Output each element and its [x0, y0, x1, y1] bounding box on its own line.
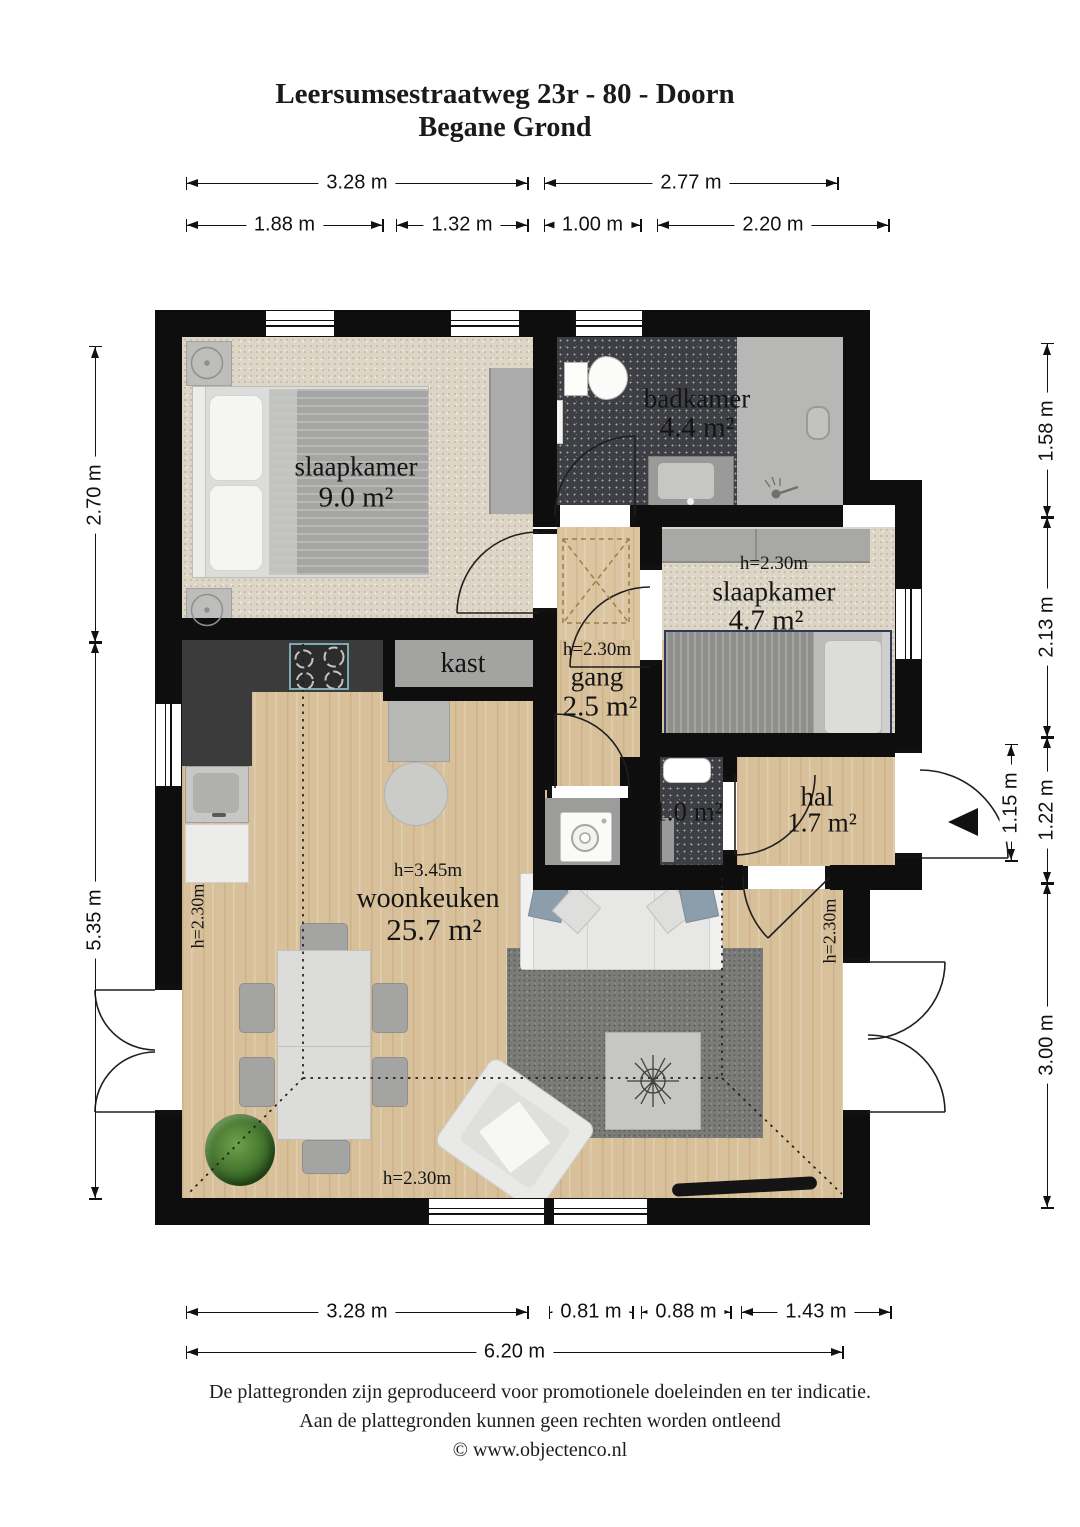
- wall-slaapkamer9-bottom: [182, 618, 533, 640]
- dim-top1-right: 2.77 m: [545, 183, 837, 184]
- label-slaapkamer9-name: slaapkamer: [295, 452, 418, 483]
- label-badkamer-area: 4.4 m²: [660, 412, 735, 445]
- label-kast: kast: [440, 648, 485, 680]
- dining-table: [277, 950, 371, 1140]
- window-left-kitchen: [155, 703, 182, 787]
- dim-right-inner: 1.15 m: [1011, 745, 1012, 860]
- label-woonkeuken-area: 25.7 m²: [386, 912, 481, 948]
- kitchen-sink-basin: [193, 773, 239, 813]
- dim-bottom1-b: 0.81 m: [550, 1312, 632, 1313]
- label-gang-height: h=2.30m: [563, 639, 631, 661]
- label-gang-area: 2.5 m²: [563, 691, 638, 724]
- dim-top2-b: 1.32 m: [397, 225, 527, 226]
- door-badkamer-opening: [555, 505, 635, 527]
- label-toilet-area: 1.0 m²: [653, 797, 723, 828]
- door-slaapkamer47-opening: [640, 565, 662, 665]
- kitchen-counter-top: [182, 640, 385, 692]
- dim-top1-left: 3.28 m: [187, 183, 527, 184]
- nightstand-top: [186, 341, 232, 386]
- toilet-room-sink: [663, 758, 711, 783]
- dim-right-b: 2.13 m: [1047, 517, 1048, 737]
- window-bottom-2: [553, 1198, 648, 1225]
- dim-bottom1-c: 0.88 m: [642, 1312, 730, 1313]
- washing-machine: [560, 812, 612, 862]
- dim-bottom1-d: 1.43 m: [742, 1312, 890, 1313]
- floorplan-page: Leersumsestraatweg 23r - 80 - Doorn Bega…: [0, 0, 1080, 1527]
- label-slaapkamer47-area: 4.7 m²: [729, 605, 804, 638]
- shower-drain: [806, 406, 830, 440]
- label-slaapkamer9-area: 9.0 m²: [319, 482, 394, 515]
- wall-right-badkamer: [843, 310, 870, 505]
- kitchen-cabinet: [388, 696, 450, 762]
- single-bed: [664, 630, 892, 742]
- washbasin-sink: [658, 463, 714, 499]
- dim-top2-c: 1.00 m: [545, 225, 640, 226]
- wardrobe-slaapkamer-9: [489, 368, 533, 514]
- dim-right-c: 1.22 m: [1047, 737, 1048, 883]
- toilet-cistern: [564, 362, 588, 396]
- bed-headboard: [193, 387, 206, 577]
- dim-right-d: 3.00 m: [1047, 883, 1048, 1207]
- dim-bottom1-a: 3.28 m: [187, 1312, 527, 1313]
- label-hal-area: 1.7 m²: [787, 808, 857, 839]
- single-bed-pillow: [824, 640, 882, 734]
- kitchen-sink: [185, 766, 249, 823]
- kitchen-tap: [212, 813, 226, 817]
- dining-chair: [372, 983, 408, 1033]
- dishwasher: [185, 824, 249, 883]
- washbasin-tap: [687, 498, 694, 505]
- window-right-slaapkamer47: [895, 588, 922, 660]
- copyright: © www.objectenco.nl: [0, 1436, 1080, 1465]
- dining-chair: [302, 1140, 350, 1174]
- washbasin: [648, 456, 734, 506]
- wall-hal-bottom-right: [830, 865, 922, 890]
- window-bottom-1: [428, 1198, 545, 1225]
- table-seam: [278, 1046, 370, 1047]
- dim-left-upper: 2.70 m: [95, 347, 96, 642]
- door-slaapkamer9-opening: [533, 529, 557, 613]
- single-bed-blanket: [666, 632, 814, 740]
- dining-chair: [372, 1057, 408, 1107]
- wall-slaapkamer47-bottom: [640, 733, 922, 757]
- dim-right-a: 1.58 m: [1047, 344, 1048, 517]
- label-slaapkamer47-height: h=2.30m: [740, 553, 808, 575]
- wall-hal-bottom-left: [533, 865, 743, 890]
- kitchen-counter-left: [182, 690, 252, 766]
- dim-top2-d: 2.20 m: [658, 225, 888, 226]
- page-title: Leersumsestraatweg 23r - 80 - Doorn: [0, 78, 1010, 111]
- dim-left-lower: 5.35 m: [95, 642, 96, 1198]
- window-top-3: [575, 310, 643, 337]
- label-badkamer-name: badkamer: [644, 384, 750, 415]
- french-door-right-opening: [843, 958, 870, 1115]
- entrance-arrow-icon: [948, 808, 978, 836]
- plant: [205, 1114, 275, 1186]
- coffee-table: [605, 1032, 701, 1130]
- disclaimer-line-1: De plattegronden zijn geproduceerd voor …: [0, 1378, 1080, 1407]
- round-table: [384, 762, 448, 826]
- dim-top2-a: 1.88 m: [187, 225, 382, 226]
- dining-chair: [239, 1057, 275, 1107]
- disclaimer: De plattegronden zijn geproduceerd voor …: [0, 1378, 1080, 1465]
- induction-hob: [289, 643, 349, 690]
- label-height-right: h=2.30m: [820, 899, 841, 964]
- door-gang-nook-opening: [547, 786, 633, 798]
- wall-slaapkamer9-right-upper: [533, 310, 557, 527]
- label-woonkeuken-height: h=3.45m: [394, 860, 462, 882]
- bed-pillow: [209, 485, 263, 571]
- wall-slaapkamer9-right-lower: [533, 613, 557, 790]
- label-gang-name: gang: [571, 662, 623, 693]
- disclaimer-line-2: Aan de plattegronden kunnen geen rechten…: [0, 1407, 1080, 1436]
- page-subtitle: Begane Grond: [0, 112, 1010, 144]
- wall-gang-right-upper: [640, 505, 662, 565]
- door-toilet-opening: [723, 777, 737, 855]
- door-hal-woonkeuken-opening: [743, 866, 830, 889]
- bed-blanket-fold: [269, 389, 297, 575]
- label-height-bottom: h=2.30m: [383, 1168, 451, 1190]
- label-slaapkamer47-name: slaapkamer: [713, 577, 836, 608]
- french-door-left-opening: [155, 985, 182, 1115]
- single-bed-headboard: [882, 632, 890, 740]
- window-top-1: [265, 310, 335, 337]
- wall-kast-bottom: [383, 687, 557, 701]
- bed-pillow: [209, 395, 263, 481]
- label-woonkeuken-name: woonkeuken: [356, 883, 499, 915]
- label-height-left: h=2.30m: [188, 884, 209, 949]
- front-door-opening: [895, 748, 922, 858]
- dining-chair: [239, 983, 275, 1033]
- window-top-2: [450, 310, 520, 337]
- dim-bottom2: 6.20 m: [187, 1352, 842, 1353]
